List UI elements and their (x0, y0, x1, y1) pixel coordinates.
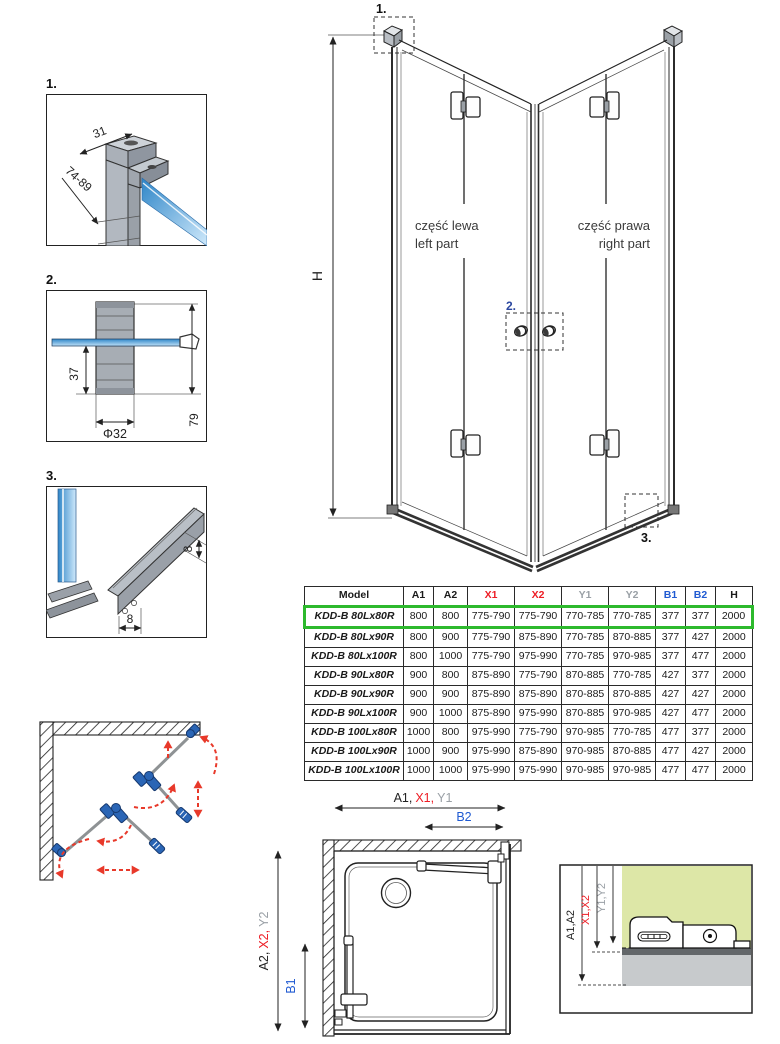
value-cell: 477 (656, 724, 686, 743)
dim-height-8: 8 (181, 545, 195, 552)
value-cell: 2000 (716, 686, 753, 705)
model-cell: KDD-B 90Lx90R (305, 686, 404, 705)
value-cell: 875-890 (515, 743, 562, 762)
value-cell: 800 (404, 628, 434, 648)
model-cell: KDD-B 80Lx90R (305, 628, 404, 648)
value-cell: 2000 (716, 648, 753, 667)
value-cell: 377 (686, 667, 716, 686)
wall-left (40, 722, 53, 880)
spec-table-header-row: ModelA1A2X1X2Y1Y2B1B2H (305, 587, 753, 607)
plan-view-drawing: A1,X1,Y1 B2 (255, 788, 547, 1044)
dim-y1y2: Y1,Y2 (596, 883, 608, 913)
dim-top-b2: B2 (456, 810, 471, 824)
value-cell: 970-985 (609, 762, 656, 781)
value-cell: 775-790 (515, 667, 562, 686)
column-header-A2: A2 (434, 587, 468, 607)
detail-1-label: 1. (46, 76, 57, 91)
value-cell: 2000 (716, 762, 753, 781)
value-cell: 975-990 (515, 648, 562, 667)
main-enclosure-drawing: H 1. (300, 0, 780, 582)
dim-left-a2x2y2: A2,X2,Y2 (257, 912, 271, 971)
value-cell: 875-890 (468, 686, 515, 705)
table-row: KDD-B 80Lx100R8001000775-790975-990770-7… (305, 648, 753, 667)
value-cell: 775-790 (515, 724, 562, 743)
value-cell: 800 (434, 607, 468, 628)
dim-left-b1: B1 (284, 978, 298, 993)
knob-icon (513, 324, 528, 337)
spec-table-container: ModelA1A2X1X2Y1Y2B1B2H KDD-B 80Lx80R8008… (303, 586, 754, 781)
dim-offset-37: 37 (67, 367, 81, 381)
column-header-B2: B2 (686, 587, 716, 607)
right-part-label-en: right part (599, 236, 651, 251)
value-cell: 970-985 (562, 743, 609, 762)
value-cell: 477 (656, 743, 686, 762)
hinge-icon (451, 430, 480, 457)
folding-direction-schematic (30, 712, 220, 890)
value-cell: 900 (404, 705, 434, 724)
value-cell: 900 (434, 743, 468, 762)
value-cell: 970-985 (562, 762, 609, 781)
model-cell: KDD-B 100Lx90R (305, 743, 404, 762)
value-cell: 875-890 (468, 705, 515, 724)
callout-3: 3. (641, 531, 651, 545)
value-cell: 2000 (716, 705, 753, 724)
value-cell: 1000 (434, 705, 468, 724)
hinge-icon (590, 92, 619, 119)
handle-tip (180, 334, 199, 349)
value-cell: 427 (686, 686, 716, 705)
value-cell: 2000 (716, 743, 753, 762)
value-cell: 900 (404, 667, 434, 686)
left-part-label-pl: część lewa (415, 218, 479, 233)
column-header-X1: X1 (468, 587, 515, 607)
value-cell: 975-990 (468, 762, 515, 781)
value-cell: 870-885 (609, 743, 656, 762)
value-cell: 870-885 (562, 686, 609, 705)
left-part-label-en: left part (415, 236, 459, 251)
fold-direction-arrows (59, 737, 216, 877)
wall-top (40, 722, 200, 735)
spec-table: ModelA1A2X1X2Y1Y2B1B2H KDD-B 80Lx80R8008… (303, 586, 754, 781)
value-cell: 2000 (716, 628, 753, 648)
dim-height-79: 79 (187, 413, 201, 427)
value-cell: 477 (686, 762, 716, 781)
value-cell: 1000 (434, 762, 468, 781)
value-cell: 975-990 (468, 743, 515, 762)
dim-diameter-32: Φ32 (103, 427, 127, 441)
column-header-Y2: Y2 (609, 587, 656, 607)
detail-3-label: 3. (46, 468, 57, 483)
value-cell: 775-790 (468, 607, 515, 628)
technical-drawing-page: 1. 31 74-89 (0, 0, 780, 1044)
dim-height-H: H (309, 271, 325, 281)
value-cell: 770-785 (562, 607, 609, 628)
hinge-icon (590, 430, 619, 457)
right-part-label-pl: część prawa (578, 218, 651, 233)
value-cell: 427 (656, 667, 686, 686)
value-cell: 377 (656, 607, 686, 628)
value-cell: 377 (656, 628, 686, 648)
right-wall-profile (664, 26, 682, 510)
value-cell: 770-785 (609, 667, 656, 686)
value-cell: 975-990 (515, 762, 562, 781)
value-cell: 1000 (404, 762, 434, 781)
value-cell: 970-985 (609, 705, 656, 724)
door-panels (64, 738, 188, 853)
value-cell: 1000 (404, 724, 434, 743)
value-cell: 975-990 (515, 705, 562, 724)
value-cell: 775-790 (515, 607, 562, 628)
column-header-Y1: Y1 (562, 587, 609, 607)
wall-top (323, 840, 521, 851)
dim-x1x2: X1,X2 (580, 895, 592, 925)
model-cell: KDD-B 80Lx100R (305, 648, 404, 667)
left-wall-profile (384, 26, 402, 510)
value-cell: 900 (404, 686, 434, 705)
table-row: KDD-B 100Lx80R1000800975-990775-790970-9… (305, 724, 753, 743)
value-cell: 770-785 (609, 607, 656, 628)
value-cell: 975-990 (468, 724, 515, 743)
callout-1: 1. (376, 2, 386, 16)
detail-1-drawing: 31 74-89 (46, 94, 207, 246)
value-cell: 427 (656, 705, 686, 724)
value-cell: 875-890 (468, 667, 515, 686)
value-cell: 477 (686, 705, 716, 724)
column-header-X2: X2 (515, 587, 562, 607)
section-detail-drawing: Y1,Y2 X1,X2 A1,A2 (548, 852, 780, 1024)
value-cell: 800 (404, 607, 434, 628)
value-cell: 775-790 (468, 628, 515, 648)
value-cell: 2000 (716, 667, 753, 686)
shower-tray (345, 863, 497, 1021)
value-cell: 377 (686, 724, 716, 743)
value-cell: 377 (656, 648, 686, 667)
model-cell: KDD-B 100Lx80R (305, 724, 404, 743)
value-cell: 477 (686, 648, 716, 667)
table-row: KDD-B 80Lx90R800900775-790875-890770-785… (305, 628, 753, 648)
value-cell: 870-885 (562, 667, 609, 686)
detail-2-drawing: 37 79 Φ32 (46, 290, 207, 442)
value-cell: 1000 (404, 743, 434, 762)
table-row: KDD-B 100Lx90R1000900975-990875-890970-9… (305, 743, 753, 762)
column-header-B1: B1 (656, 587, 686, 607)
value-cell: 427 (686, 743, 716, 762)
value-cell: 427 (656, 686, 686, 705)
value-cell: 477 (656, 762, 686, 781)
value-cell: 870-885 (562, 705, 609, 724)
wall-left (323, 840, 334, 1036)
column-header-A1: A1 (404, 587, 434, 607)
value-cell: 900 (434, 628, 468, 648)
column-header-Model: Model (305, 587, 404, 607)
table-row: KDD-B 90Lx100R9001000875-890975-990870-8… (305, 705, 753, 724)
value-cell: 800 (404, 648, 434, 667)
value-cell: 870-885 (609, 628, 656, 648)
value-cell: 377 (686, 607, 716, 628)
value-cell: 870-885 (609, 686, 656, 705)
dim-top-a1x1y1: A1,X1,Y1 (394, 791, 453, 805)
knob-icon (541, 324, 556, 337)
value-cell: 427 (686, 628, 716, 648)
table-row: KDD-B 80Lx80R800800775-790775-790770-785… (305, 607, 753, 628)
value-cell: 900 (434, 686, 468, 705)
detail-2-label: 2. (46, 272, 57, 287)
value-cell: 2000 (716, 607, 753, 628)
value-cell: 770-785 (562, 628, 609, 648)
model-cell: KDD-B 100Lx100R (305, 762, 404, 781)
value-cell: 800 (434, 667, 468, 686)
column-header-H: H (716, 587, 753, 607)
model-cell: KDD-B 90Lx80R (305, 667, 404, 686)
hinge-points (51, 724, 200, 859)
value-cell: 800 (434, 724, 468, 743)
table-row: KDD-B 90Lx80R900800875-890775-790870-885… (305, 667, 753, 686)
dim-a1a2: A1,A2 (565, 910, 577, 940)
glass-panel (52, 339, 180, 346)
value-cell: 1000 (434, 648, 468, 667)
table-row: KDD-B 90Lx90R900900875-890875-890870-885… (305, 686, 753, 705)
corner-post (527, 104, 543, 562)
value-cell: 875-890 (515, 628, 562, 648)
value-cell: 775-790 (468, 648, 515, 667)
value-cell: 875-890 (515, 686, 562, 705)
value-cell: 970-985 (562, 724, 609, 743)
hinge-icon (451, 92, 480, 119)
value-cell: 770-785 (562, 648, 609, 667)
table-row: KDD-B 100Lx100R10001000975-990975-990970… (305, 762, 753, 781)
value-cell: 2000 (716, 724, 753, 743)
detail-3-drawing: 8 8 (46, 486, 207, 638)
value-cell: 770-785 (609, 724, 656, 743)
model-cell: KDD-B 80Lx80R (305, 607, 404, 628)
dim-width-8: 8 (127, 612, 134, 626)
callout-2: 2. (506, 299, 516, 313)
value-cell: 970-985 (609, 648, 656, 667)
model-cell: KDD-B 90Lx100R (305, 705, 404, 724)
